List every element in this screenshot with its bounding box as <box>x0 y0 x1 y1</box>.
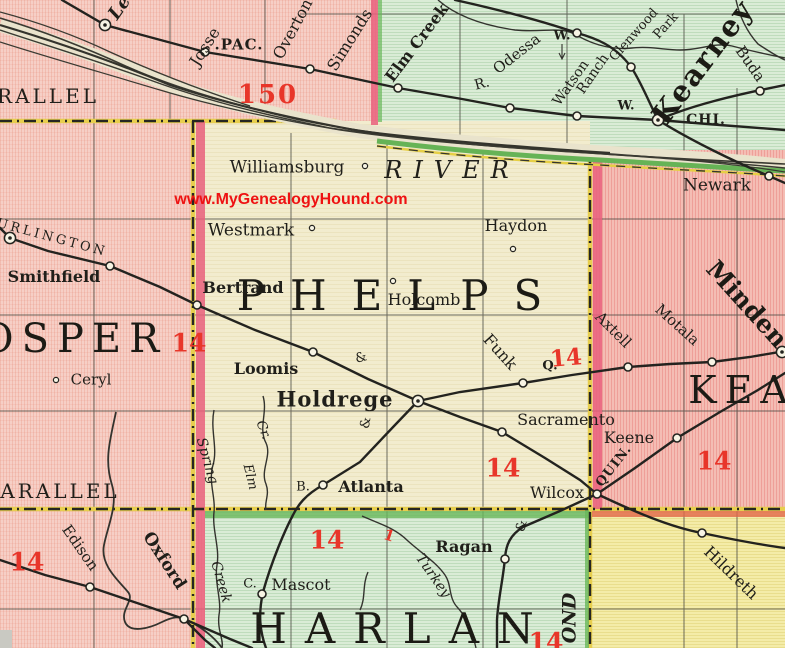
abbr-label-c: C. <box>243 578 257 591</box>
watermark-url: www.MyGenealogyHound.com <box>174 192 407 208</box>
town-label-keene: Keene <box>604 430 654 446</box>
town-label-atlanta: Atlanta <box>338 479 403 495</box>
town-label-ceryl: Ceryl <box>71 373 112 388</box>
town-label-mascot: Mascot <box>271 577 330 593</box>
township-number-14-franklin-partial: 14 <box>529 630 564 648</box>
town-label-holcomb: Holcomb <box>388 292 461 308</box>
town-label-ragan: Ragan <box>435 539 492 555</box>
town-label-wilcox: Wilcox <box>530 485 584 501</box>
township-number-14-harlan: 14 <box>310 528 345 553</box>
town-label-haydon: Haydon <box>485 218 548 234</box>
town-label-westmark: Westmark <box>208 223 294 240</box>
county-name-kearney: KEA <box>688 371 785 409</box>
town-label-newark: Newark <box>683 178 751 195</box>
town-label-holdrege: Holdrege <box>277 389 394 410</box>
township-number-14-kearney: 14 <box>697 449 732 474</box>
township-number-14-phelps-south: 14 <box>486 456 521 481</box>
parallel-label-north: RALLEL <box>0 86 99 106</box>
scan-edge-corner <box>0 630 12 648</box>
abbr-label-w-south: W. <box>617 100 634 113</box>
railroad-label-chi: CHI. <box>686 113 726 127</box>
parallel-label-south: ARALLEL <box>0 481 119 501</box>
railroad-label-union-pacific: .PAC. <box>215 38 264 53</box>
town-label-loomis: Loomis <box>234 361 299 377</box>
county-map-phelps-nebraska: Le Josse .PAC. Overton Simonds 150 RALLE… <box>0 0 785 648</box>
township-number-150: 150 <box>238 82 298 108</box>
county-name-harlan: HARLAN <box>250 608 552 648</box>
township-number-14-axtell: 14 <box>549 345 583 371</box>
township-number-14-furnas: 14 <box>10 550 45 575</box>
town-label-smithfield: Smithfield <box>8 269 101 285</box>
railroad-ampersand-2: & <box>359 416 374 430</box>
town-label-williamsburg: Williamsburg <box>230 160 345 177</box>
town-label-bertrand: Bertrand <box>202 280 283 296</box>
abbr-label-b: B. <box>296 481 310 494</box>
abbr-label-w-north: W. <box>553 30 570 43</box>
abbr-label-r: R. <box>473 75 491 92</box>
township-number-14-gosper: 14 <box>172 331 207 356</box>
county-name-gosper: OSPER <box>0 319 167 359</box>
river-label: RIVER <box>384 158 519 182</box>
town-label-sacramento: Sacramento <box>517 412 615 428</box>
